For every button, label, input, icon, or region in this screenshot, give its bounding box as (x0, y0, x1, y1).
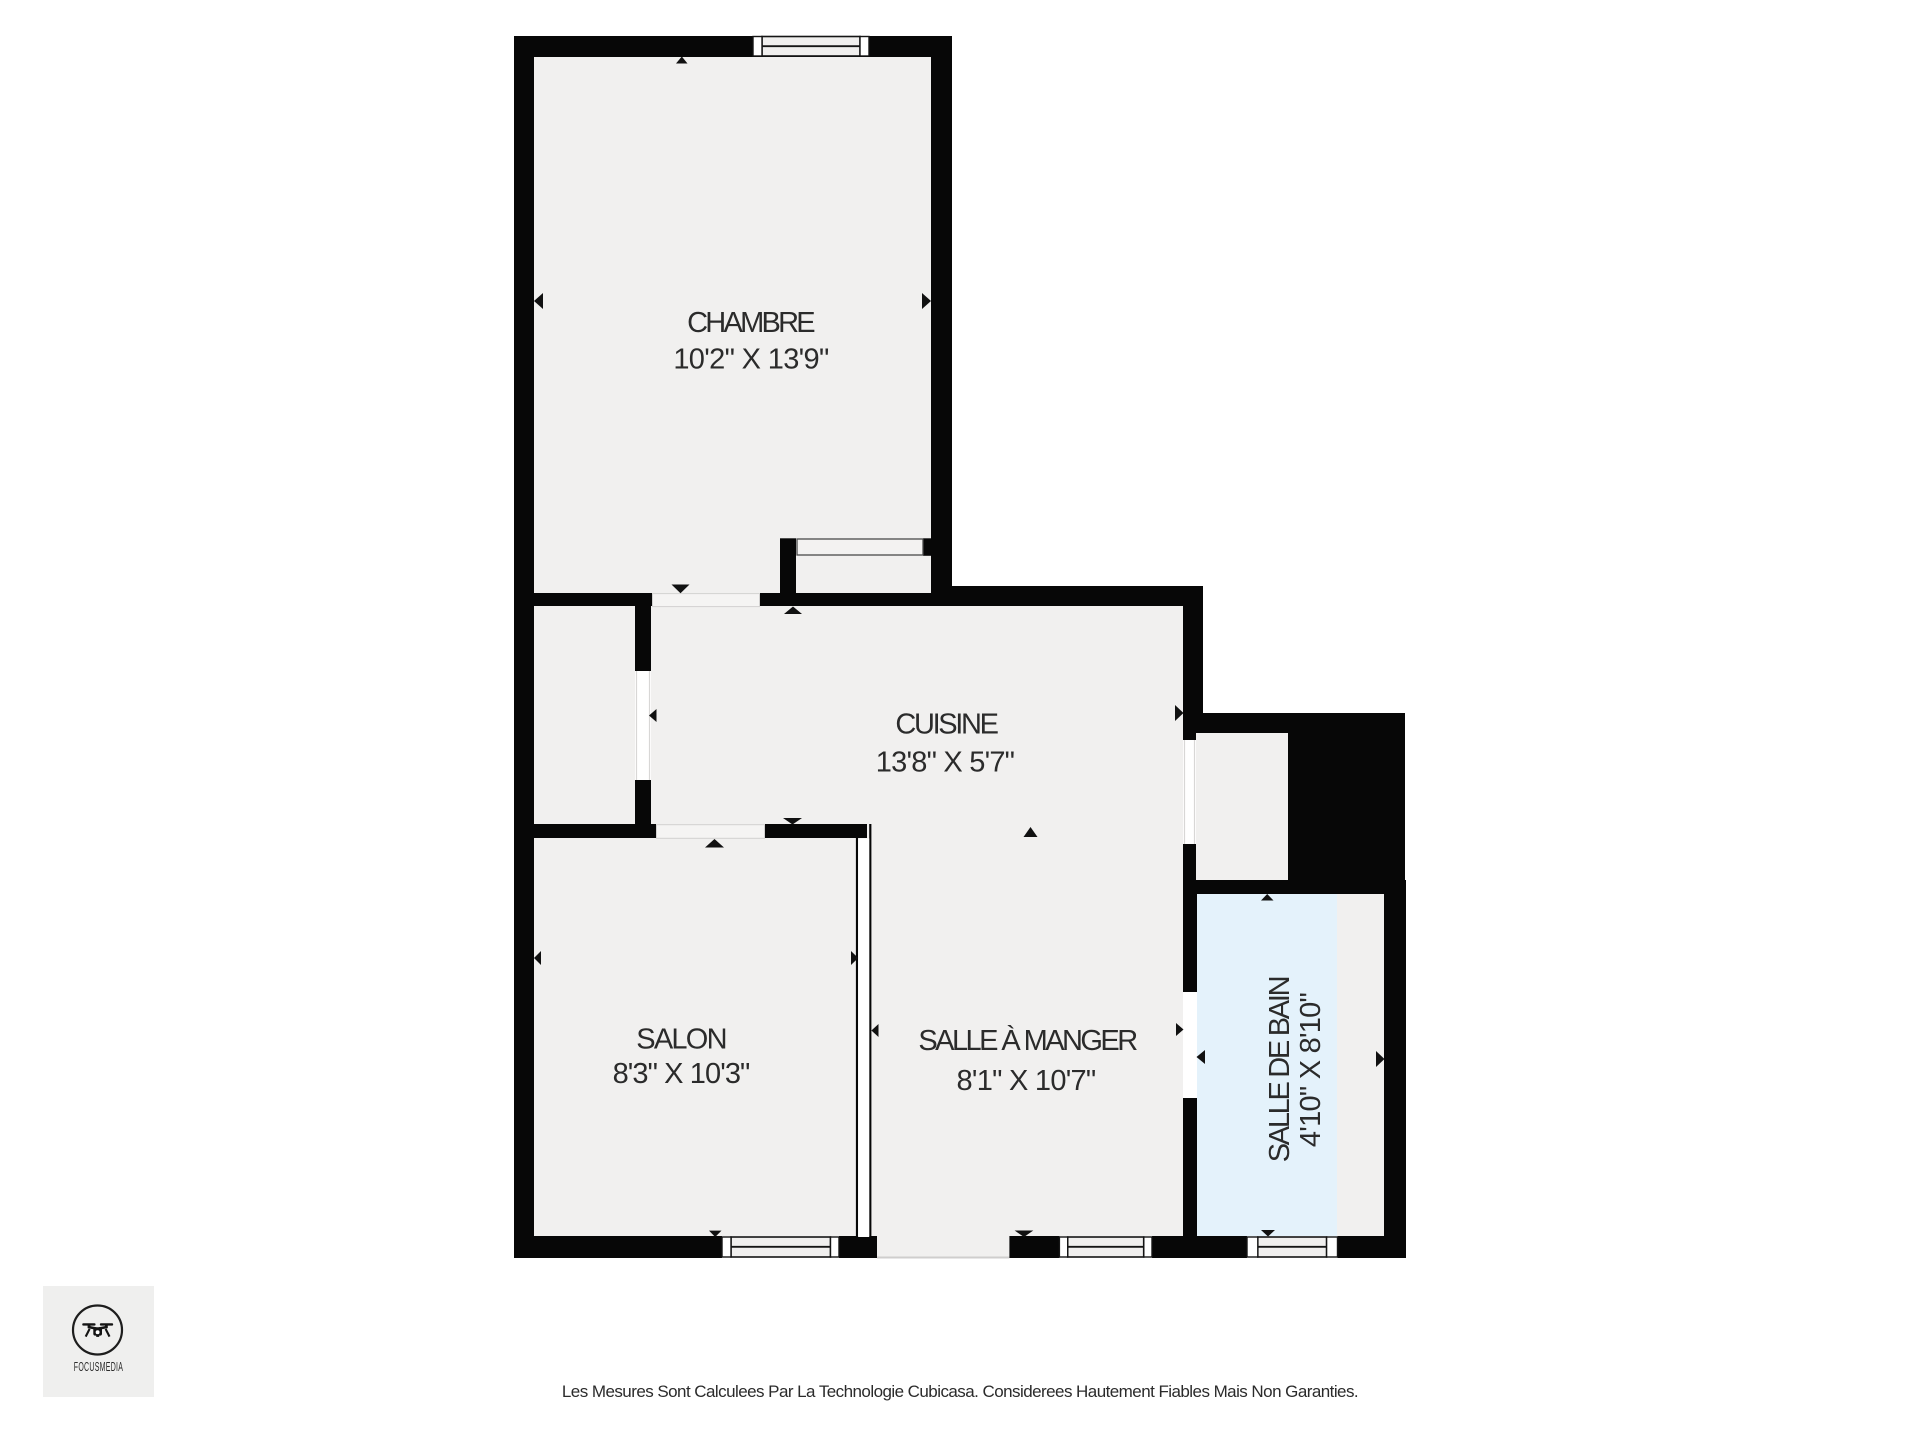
svg-text:CUISINE: CUISINE (895, 709, 998, 741)
svg-text:FOCUSMEDIA: FOCUSMEDIA (74, 1361, 123, 1375)
svg-text:Les Mesures Sont Calculees Par: Les Mesures Sont Calculees Par La Techno… (562, 1382, 1358, 1401)
svg-text:CHAMBRE: CHAMBRE (687, 307, 815, 339)
svg-text:SALLE À MANGER: SALLE À MANGER (918, 1024, 1137, 1057)
svg-text:SALLE DE BAIN: SALLE DE BAIN (1264, 977, 1296, 1162)
svg-text:13'8" X 5'7": 13'8" X 5'7" (876, 747, 1015, 779)
svg-text:8'1" X 10'7": 8'1" X 10'7" (956, 1065, 1095, 1097)
svg-text:4'10" X 8'10": 4'10" X 8'10" (1295, 992, 1327, 1147)
svg-text:SALON: SALON (636, 1024, 726, 1056)
svg-text:10'2" X 13'9": 10'2" X 13'9" (673, 344, 829, 376)
svg-text:8'3" X 10'3": 8'3" X 10'3" (613, 1058, 750, 1090)
